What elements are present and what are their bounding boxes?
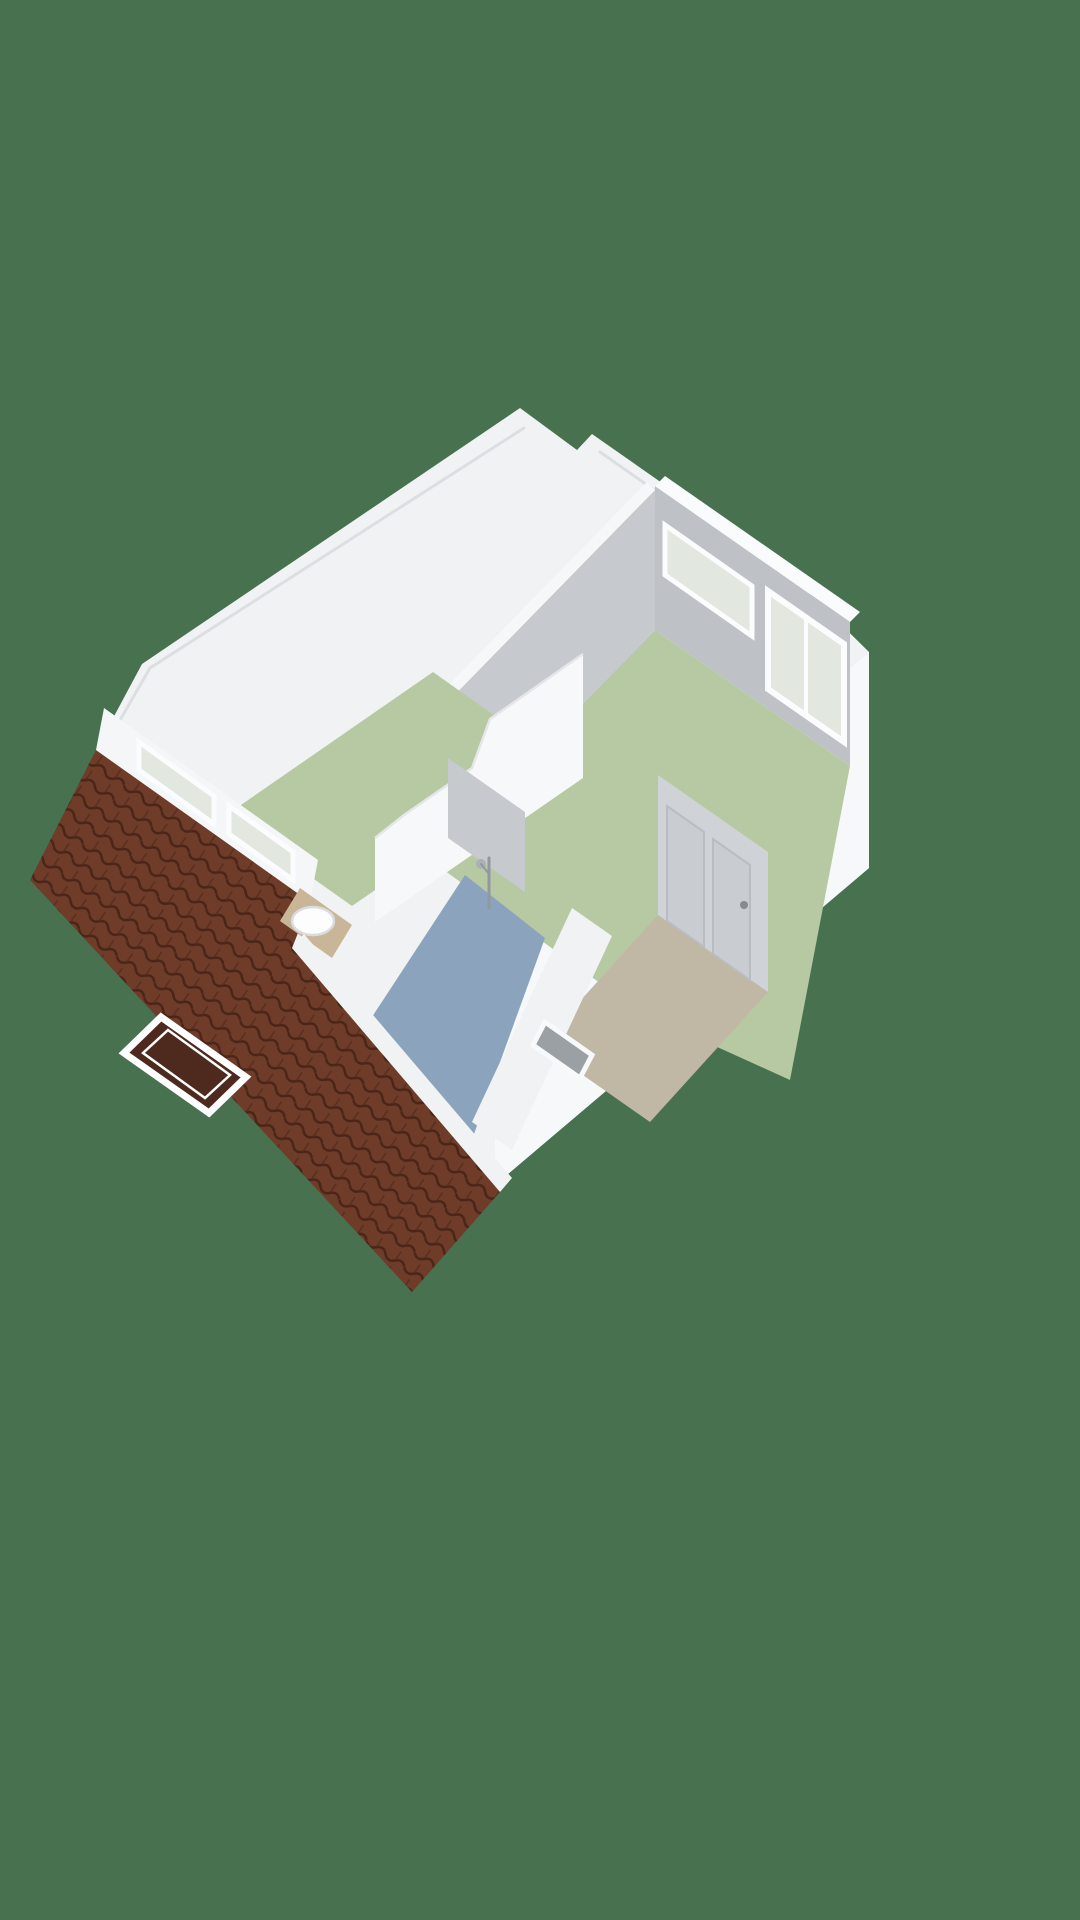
- closet-door-1: [667, 806, 704, 947]
- floorplan-render: [0, 0, 1080, 1920]
- closet-door-2: [713, 839, 750, 980]
- door-handle-icon: [740, 901, 748, 909]
- washbasin: [292, 907, 334, 935]
